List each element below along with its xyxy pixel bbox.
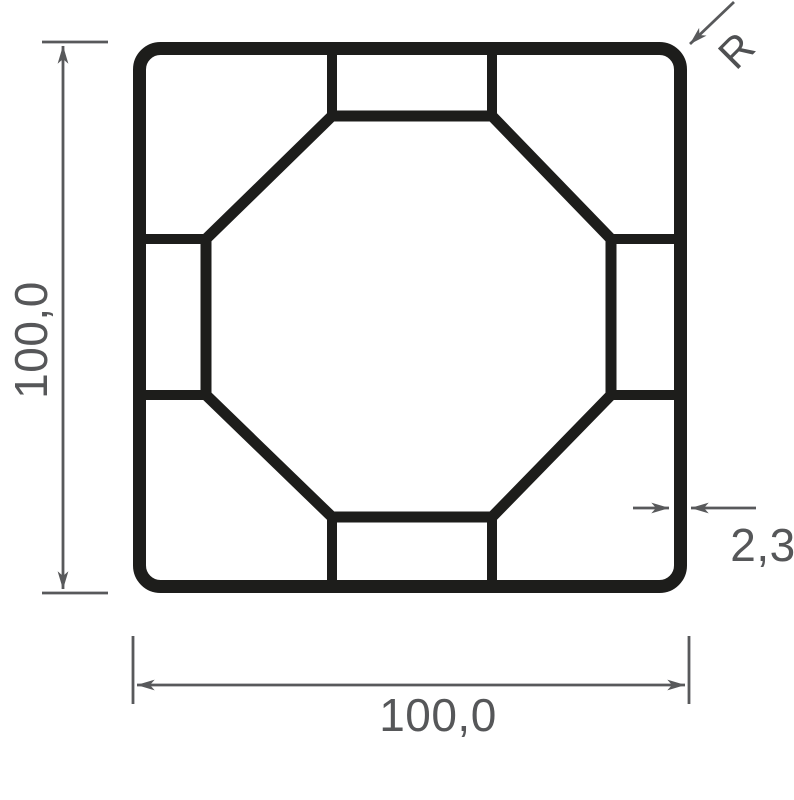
width-dimension: 100,0 <box>133 636 689 741</box>
profile-geometry <box>140 49 681 587</box>
radius-label: R <box>709 23 764 78</box>
inner-octagon-wall <box>206 116 611 517</box>
height-dimension: 100,0 <box>5 42 108 593</box>
profile-cross-section-svg: 100,0 100,0 2,3 R <box>0 0 794 800</box>
thickness-dimension: 2,3 <box>633 508 794 571</box>
height-dimension-label: 100,0 <box>5 281 57 399</box>
thickness-dimension-label: 2,3 <box>730 519 794 571</box>
width-dimension-label: 100,0 <box>379 689 497 741</box>
technical-drawing-canvas: 100,0 100,0 2,3 R <box>0 0 794 800</box>
outer-square-wall <box>140 49 681 587</box>
radius-callout: R <box>690 2 764 78</box>
